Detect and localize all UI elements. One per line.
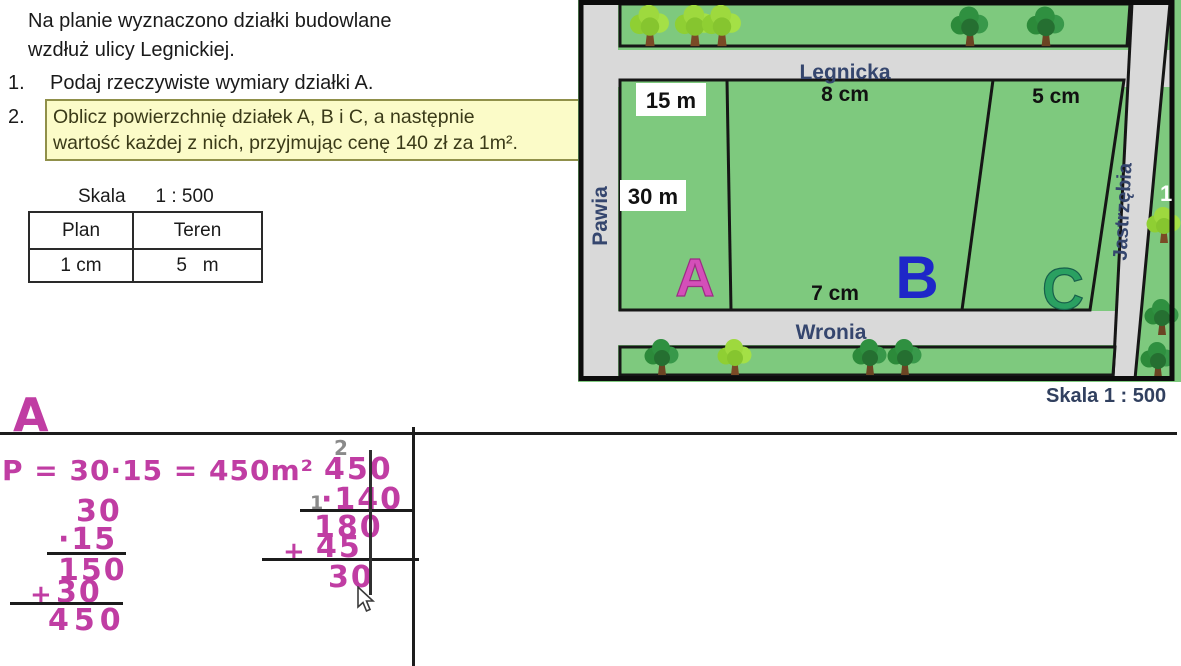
scale-caption-value: 1 : 500 (156, 186, 214, 207)
scale-table-header-plan: Plan (29, 212, 133, 249)
calc2-plus: + (283, 537, 305, 567)
scale-caption-label: Skala (78, 186, 126, 207)
dim-label-7cm: 7 cm (811, 282, 859, 305)
scale-table-header-teren: Teren (133, 212, 262, 249)
scale-table-value-plan: 1 cm (29, 249, 133, 282)
solution-divider-vertical (412, 427, 415, 666)
worksheet-page: { "problem": { "intro_line1": "Na planie… (0, 0, 1181, 666)
street-label-wronia: Wronia (796, 321, 867, 344)
plots-map: 15 m 30 m 8 cm 5 cm 7 cm A B C Legnicka … (578, 0, 1181, 382)
scale-caption: Skala1 : 500 (78, 186, 214, 208)
scale-table: Plan Teren 1 cm 5 m (28, 211, 263, 283)
plot-label-a: A (676, 248, 715, 308)
plot-label-c: C (1042, 257, 1084, 322)
item2-line-1: Oblicz powierzchnię działek A, B i C, a … (53, 104, 579, 130)
item1-number: 1. (8, 70, 25, 96)
map-edge-green-sliver (1176, 0, 1181, 148)
item2-number: 2. (8, 104, 25, 130)
mouse-cursor (356, 586, 378, 614)
item2-highlight-box: Oblicz powierzchnię działek A, B i C, a … (45, 99, 581, 161)
scale-table-value-teren: 5 m (133, 249, 262, 282)
dim-label-15m: 15 m (646, 88, 696, 113)
intro-line-2: wzdłuż ulicy Legnickiej. (28, 37, 235, 63)
calc1-result: 450 (48, 603, 126, 638)
plot-label-b: B (895, 244, 938, 311)
map-scale-note: Skala 1 : 500 (1046, 385, 1166, 408)
street-label-legnicka: Legnicka (799, 61, 890, 84)
dim-label-5cm: 5 cm (1032, 85, 1080, 108)
calc2-column-line (369, 450, 372, 595)
intro-line-1: Na planie wyznaczono działki budowlane (28, 8, 392, 34)
item2-line-2: wartość każdej z nich, przyjmując cenę 1… (53, 130, 579, 156)
dim-label-8cm: 8 cm (821, 83, 869, 106)
solution-divider-horizontal (0, 432, 1177, 435)
map-edge-mark: 1 (1160, 181, 1172, 207)
dim-label-30m: 30 m (628, 184, 678, 209)
area-formula: P = 30·15 = 450m² (2, 454, 314, 487)
street-label-pawia: Pawia (589, 186, 612, 246)
item1-text: Podaj rzeczywiste wymiary działki A. (50, 70, 373, 96)
